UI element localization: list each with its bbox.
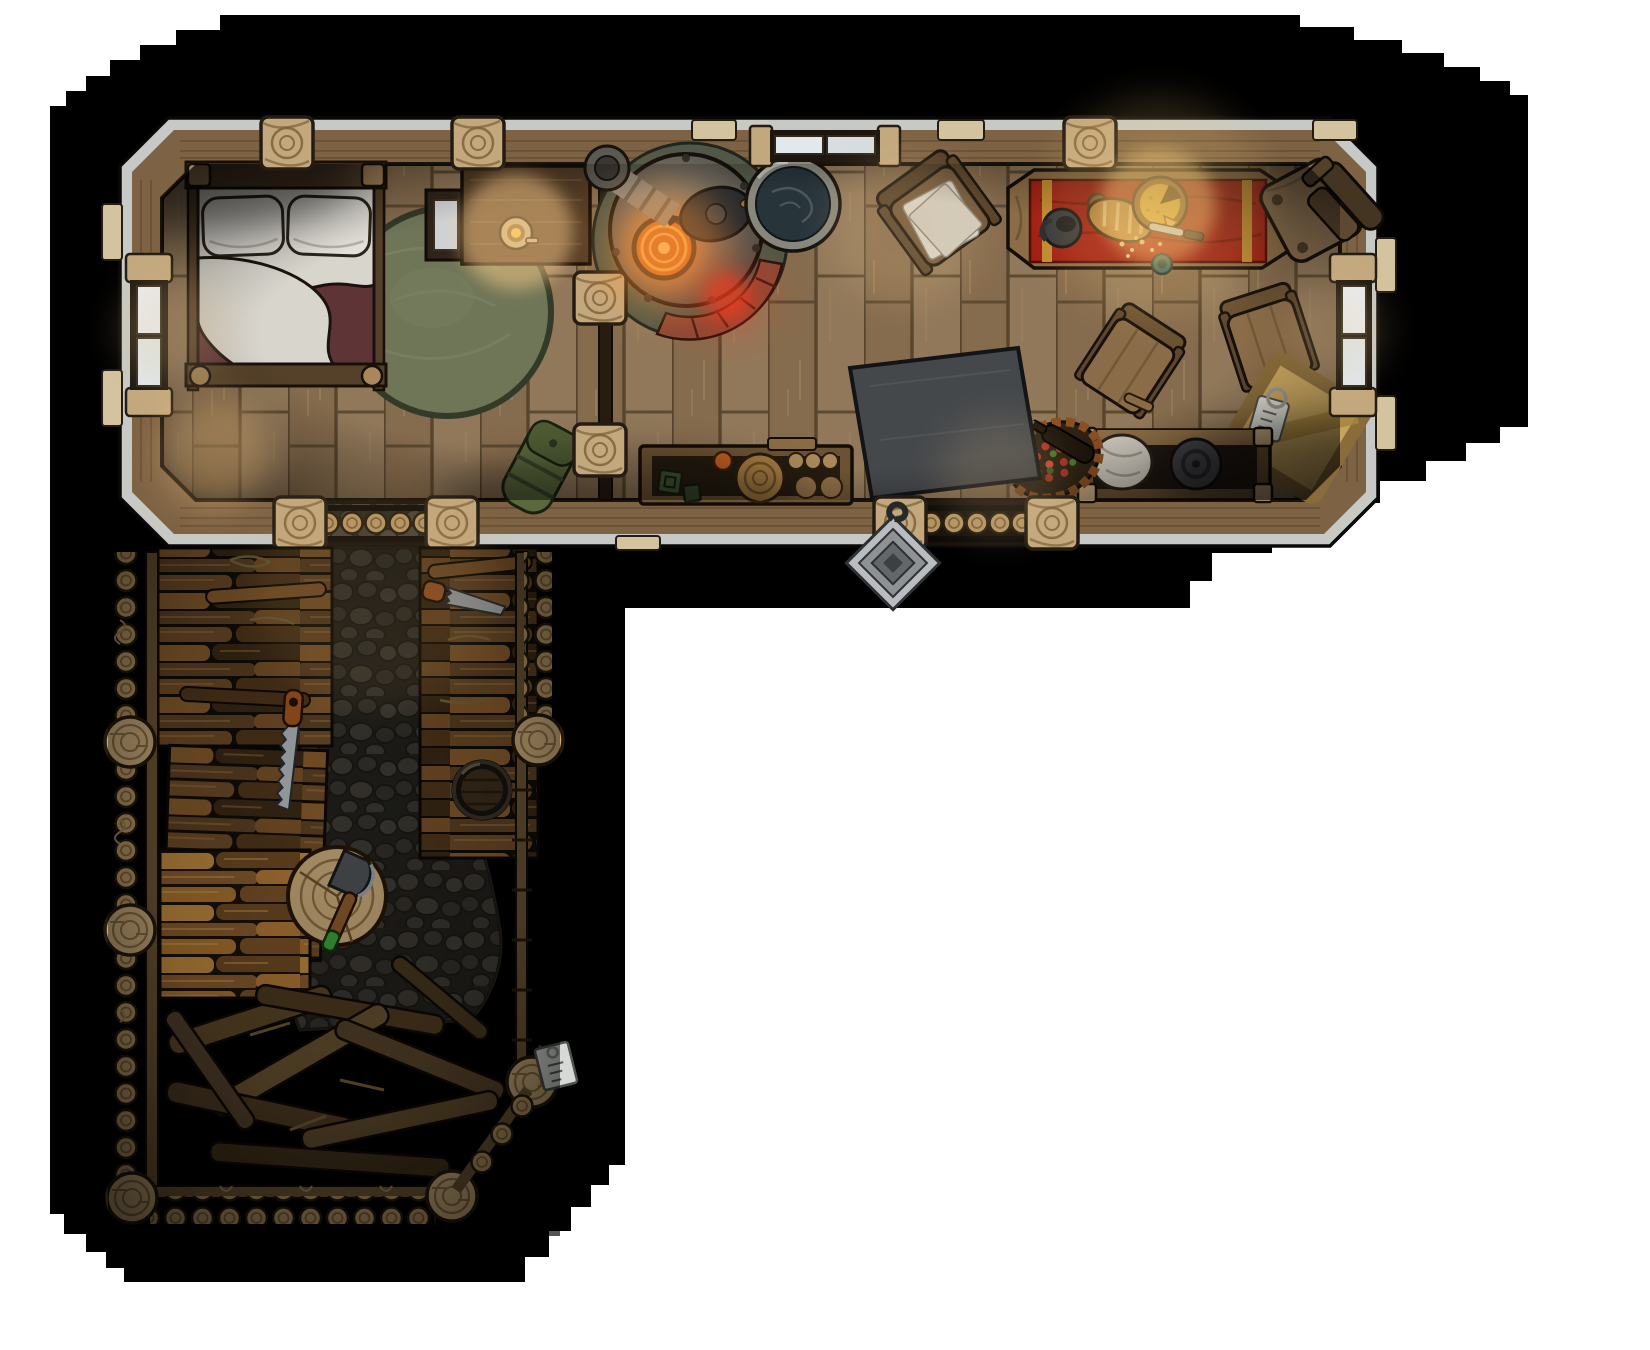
window-light	[830, 153, 980, 303]
window-light	[120, 275, 230, 385]
candle-glow	[458, 174, 574, 290]
battlemap	[0, 0, 1650, 1350]
bedside-glow	[160, 397, 270, 507]
yard-door-light	[255, 470, 495, 710]
door-light	[940, 418, 1060, 538]
window-light	[1286, 280, 1386, 380]
